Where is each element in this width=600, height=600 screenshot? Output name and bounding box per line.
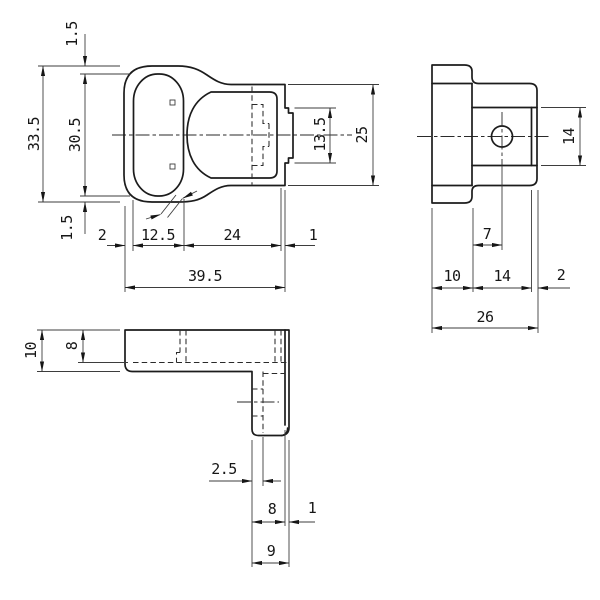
front-notch-mark-bottom	[170, 164, 175, 169]
dim-right-wall: 1	[309, 226, 318, 244]
dim-flange-depth: 10	[443, 267, 461, 285]
bottom-hidden-step	[177, 353, 181, 363]
front-hidden-step-top	[252, 105, 269, 124]
drawing-canvas: 1.5 33.5 30.5 1.5 2 12.5 24 1 39.5 13.5 …	[0, 0, 600, 600]
dim-bar-depth: 10	[22, 342, 40, 360]
dim-bottom-wall: 1.5	[58, 215, 76, 241]
dim-overall-depth: 26	[476, 308, 494, 326]
dim-leg-wall: 2.5	[211, 460, 237, 478]
dim-cavity-width: 24	[223, 226, 241, 244]
dim-leg-inner-width: 8	[268, 500, 277, 518]
front-outer-contour	[124, 66, 293, 202]
dim-leg-width: 9	[267, 542, 276, 560]
dim-block-depth: 14	[493, 267, 511, 285]
dim-bar-inner-depth: 8	[63, 341, 81, 350]
dim-left-wall: 2	[98, 226, 107, 244]
dim-top-wall: 1.5	[63, 21, 81, 47]
dim-tab-height: 13.5	[311, 117, 329, 151]
bottom-outer-contour	[125, 330, 289, 436]
dim-ring-inner-height: 30.5	[66, 118, 84, 152]
dim-hole-offset: 7	[483, 225, 492, 243]
side-view	[417, 65, 549, 250]
dim-lip-depth: 2	[557, 266, 566, 284]
dim-leg-lip: 1	[308, 499, 317, 517]
dim-body-height: 25	[353, 126, 371, 143]
bottom-dimensions: 10 8 2.5 8 1 9	[22, 330, 317, 567]
front-hidden-step-bottom	[252, 147, 269, 166]
dim-overall-width: 39.5	[188, 267, 222, 285]
side-dimensions: 14 7 10 14 2 26	[432, 108, 586, 334]
engineering-drawing: 1.5 33.5 30.5 1.5 2 12.5 24 1 39.5 13.5 …	[0, 0, 600, 600]
front-notch-mark-top	[170, 100, 175, 105]
front-dimensions: 1.5 33.5 30.5 1.5 2 12.5 24 1 39.5 13.5 …	[25, 21, 379, 292]
dim-ring-inner-width: 12.5	[141, 226, 175, 244]
side-outer-contour	[432, 65, 537, 203]
bottom-view	[125, 330, 289, 436]
dim-block-height: 14	[560, 128, 578, 146]
dim-overall-height: 33.5	[25, 117, 43, 151]
